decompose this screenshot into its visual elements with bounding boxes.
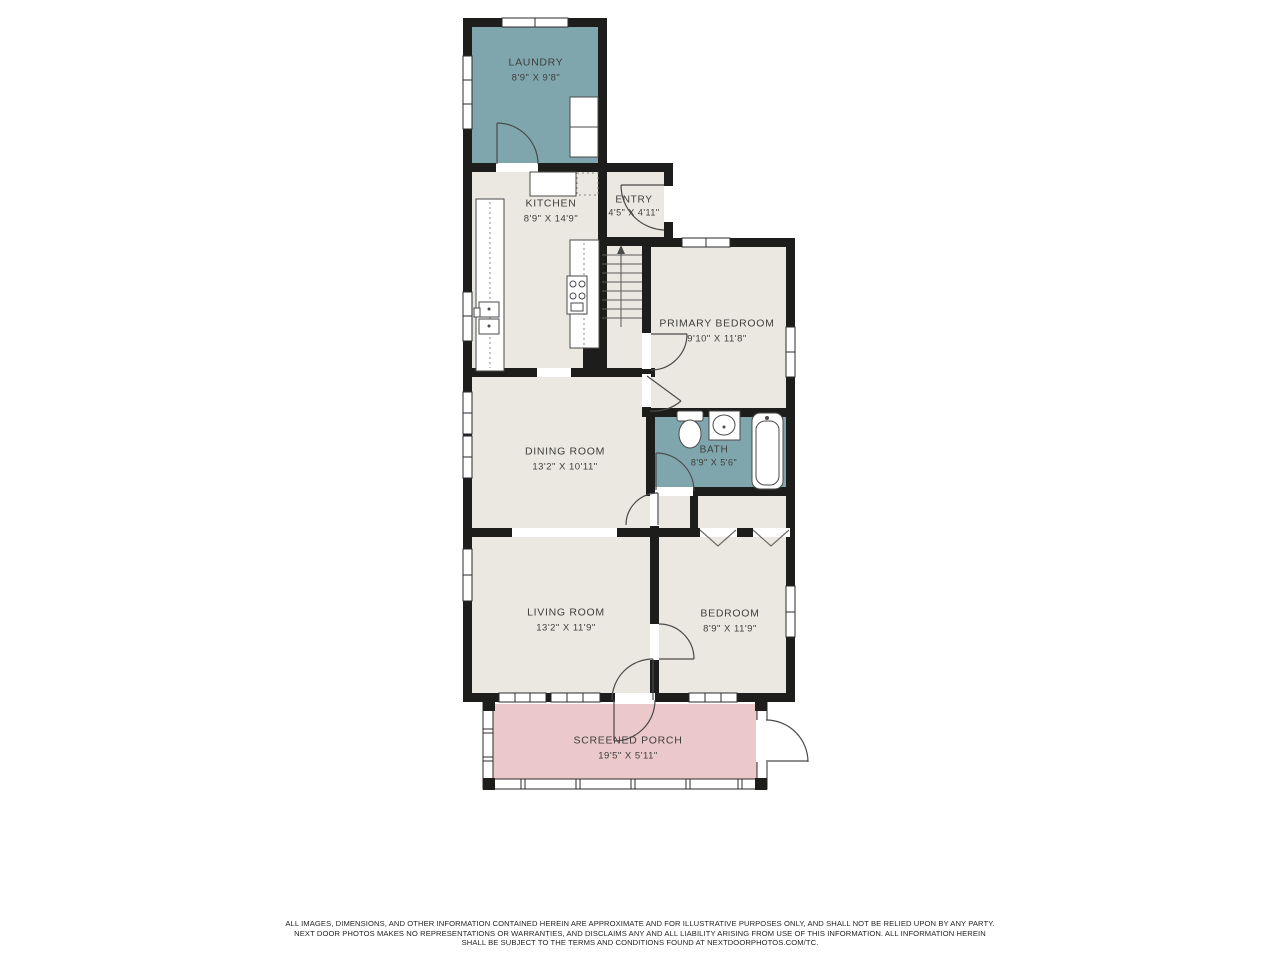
kitchen-dining-opening (537, 368, 571, 377)
kitchen-counter (476, 199, 504, 371)
floor-plan-page: LAUNDRY 8'9" X 9'8" KITCHEN 8'9" X 14'9"… (0, 0, 1280, 960)
room-label-dining: DINING ROOM 13'2" X 10'11" (525, 446, 605, 473)
bath-sink (709, 411, 740, 440)
window (463, 392, 472, 434)
disclaimer-line-3: SHALL BE SUBJECT TO THE TERMS AND CONDIT… (0, 938, 1280, 948)
toilet (677, 411, 703, 448)
porch-post (755, 778, 767, 790)
room-name: ENTRY (608, 195, 659, 206)
room-dimensions: 8'9" X 14'9" (524, 214, 578, 225)
window (502, 18, 568, 27)
porch-post (483, 778, 495, 790)
porch-door-opening (615, 693, 655, 702)
room-name: KITCHEN (524, 198, 578, 210)
stair-hall-floor (602, 241, 642, 373)
disclaimer-line-1: ALL IMAGES, DIMENSIONS, AND OTHER INFORM… (0, 919, 1280, 929)
floor-fills (472, 27, 786, 788)
laundry-door-opening (496, 163, 538, 172)
disclaimer: ALL IMAGES, DIMENSIONS, AND OTHER INFORM… (0, 919, 1280, 948)
room-label-bedroom: BEDROOM 8'9" X 11'9" (700, 608, 759, 635)
room-dimensions: 8'9" X 11'9" (700, 624, 759, 635)
window (499, 693, 546, 702)
disclaimer-line-2: NEXT DOOR PHOTOS MAKES NO REPRESENTATION… (0, 929, 1280, 939)
bedroom-door-opening (650, 624, 659, 660)
room-name: DINING ROOM (525, 446, 605, 458)
washer-dryer (570, 97, 598, 157)
window (463, 56, 472, 129)
room-dimensions: 19'5" X 5'11" (574, 751, 683, 762)
window (463, 549, 472, 601)
bath-door-opening (655, 487, 693, 496)
dining-living-opening (512, 528, 617, 537)
room-label-entry: ENTRY 4'5" X 4'11" (608, 195, 659, 218)
window (463, 436, 472, 478)
room-dimensions: 13'2" X 10'11" (525, 462, 605, 473)
porch-exterior-door-opening (756, 720, 768, 762)
room-dimensions: 8'9" X 5'6" (691, 458, 737, 468)
porch-post (755, 700, 767, 711)
stove (567, 276, 587, 314)
window (682, 238, 730, 247)
window (786, 586, 795, 637)
room-name: BEDROOM (700, 608, 759, 620)
window (463, 292, 472, 341)
entry-front-door-opening (664, 186, 673, 222)
hall-door-opening (642, 374, 651, 407)
room-dimensions: 8'9" X 9'8" (509, 73, 564, 84)
porch-post (483, 700, 495, 711)
room-label-primary-bedroom: PRIMARY BEDROOM 9'10" X 11'8" (659, 318, 774, 345)
room-dimensions: 13'2" X 11'9" (527, 623, 605, 634)
room-label-living: LIVING ROOM 13'2" X 11'9" (527, 607, 605, 634)
room-label-bath: BATH 8'9" X 5'6" (691, 445, 737, 468)
room-label-porch: SCREENED PORCH 19'5" X 5'11" (574, 735, 683, 762)
window (786, 327, 795, 377)
porch-exterior-door (766, 720, 808, 762)
room-dimensions: 4'5" X 4'11" (608, 208, 659, 218)
floor-plan-drawing (0, 0, 1280, 960)
room-dimensions: 9'10" X 11'8" (659, 334, 774, 345)
hall-closet-floor (655, 492, 786, 532)
bathtub (752, 413, 783, 489)
primary-door-opening (642, 333, 651, 369)
room-name: LAUNDRY (509, 57, 564, 69)
room-name: BATH (691, 445, 737, 456)
window (689, 693, 737, 702)
room-name: SCREENED PORCH (574, 735, 683, 747)
room-label-kitchen: KITCHEN 8'9" X 14'9" (524, 198, 578, 225)
window (551, 693, 600, 702)
room-name: LIVING ROOM (527, 607, 605, 619)
room-label-laundry: LAUNDRY 8'9" X 9'8" (509, 57, 564, 84)
room-name: PRIMARY BEDROOM (659, 318, 774, 330)
